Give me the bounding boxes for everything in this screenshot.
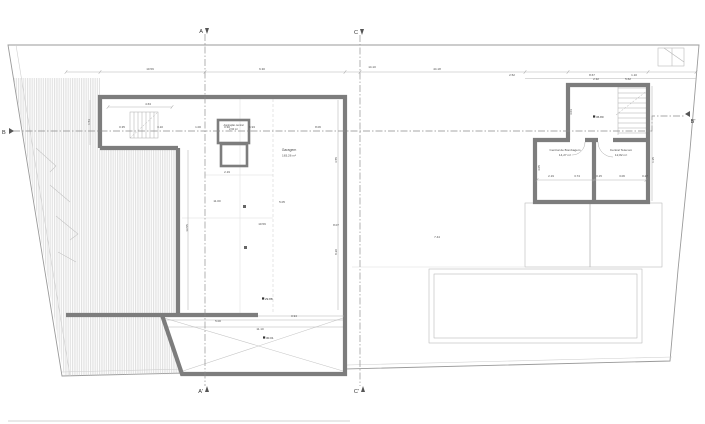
telecom-room-area: 12,82 m² [615,153,627,157]
dimension-label: 4.63 [145,102,151,106]
dimension-label: 1.35 [651,157,655,163]
section-label-a-top: A [199,29,203,35]
dimension-label: 10.59 [258,222,266,226]
section-arrow-b-left [9,128,14,134]
section-marker-b-right: B' [685,111,695,125]
svg-text:36.80: 36.80 [596,115,604,119]
section-label-a-bottom: A' [198,389,203,395]
dimension-label: 6.30 [259,67,265,71]
section-marker-b-left: B [2,128,14,136]
floor-plan-svg: A C A' C' B B' Garagem 183,26 m² Aspiraç… [0,0,705,424]
dimension-label: 2.52 [509,73,515,77]
dimension-label: 0.15 [596,174,602,178]
vac-room-area: 2,90 m² [229,127,238,131]
section-arrow-a-bottom [205,386,209,392]
svg-text:29.88: 29.88 [265,297,273,301]
dimension-label: 10.59 [146,67,154,71]
dimension-label: 1.10 [631,73,637,77]
section-marker-a-top: A [199,28,209,35]
pump-room-area: 14,27 m² [559,153,571,157]
dimension-label: 8.06 [315,125,321,129]
svg-text:30.01: 30.01 [266,336,274,340]
dimension-label: 13.55 [185,224,189,232]
dimension-label: 2.32 [593,77,599,81]
dimension-label: 1.00 [195,125,201,129]
dimension-label: 3.03 [569,109,573,115]
dimension-label: 0.35 [119,125,125,129]
garage-room-area: 183,26 m² [282,154,296,158]
garage-room-name: Garagem [282,148,297,152]
section-arrow-c-bottom [361,386,365,392]
dimension-label: 5.62 [625,77,631,81]
section-label-c-bottom: C' [354,389,359,395]
site-stair-outline [658,48,684,66]
dimension-label: 0.27 [642,174,648,178]
section-arrow-c-top [360,29,364,35]
telecom-room-name: Central Telecom [610,148,633,152]
section-marker-c-bottom: C' [354,386,365,395]
dimension-label: 44.18 [433,67,441,71]
section-marker-c-top: C [354,29,364,36]
dimension-label: 8.20 [334,249,338,255]
dimension-label: 5.00 [215,319,221,323]
section-arrow-b-right [685,111,690,117]
section-label-b-left: B [2,130,6,136]
dimension-label: 3.55 [334,157,338,163]
dimension-label: 0.30 [224,125,230,129]
floor-plan: A C A' C' B B' Garagem 183,26 m² Aspiraç… [0,0,705,424]
patio-outlines [352,203,662,343]
section-arrow-a-top [205,28,209,34]
dimension-label: 6.93 [249,125,255,129]
dimension-label: 5.05 [279,200,285,204]
technical-building-floor [535,85,648,202]
dimension-label: 1.53 [87,119,91,125]
dimension-label: 4.05 [537,165,541,171]
dimension-label: 3.74 [574,174,580,178]
dimension-label: 0.94 [291,314,297,318]
dimension-label: 2.19 [548,174,554,178]
dimension-label: 11.00 [213,199,221,203]
section-marker-a-bottom: A' [198,386,209,395]
dimension-label: 3.10 [157,125,163,129]
dimension-label: 8.07 [333,223,339,227]
dimension-label: 14.10 [368,65,376,69]
dimension-label: 2.19 [224,170,230,174]
dimension-label: 7.44 [434,235,440,239]
section-label-c-top: C [354,30,358,36]
dimension-label: 11.10 [256,327,264,331]
dimension-label: 3.06 [619,174,625,178]
pump-room-name: Central de Bombagem [550,148,581,152]
section-label-b-right: B' [691,119,696,125]
